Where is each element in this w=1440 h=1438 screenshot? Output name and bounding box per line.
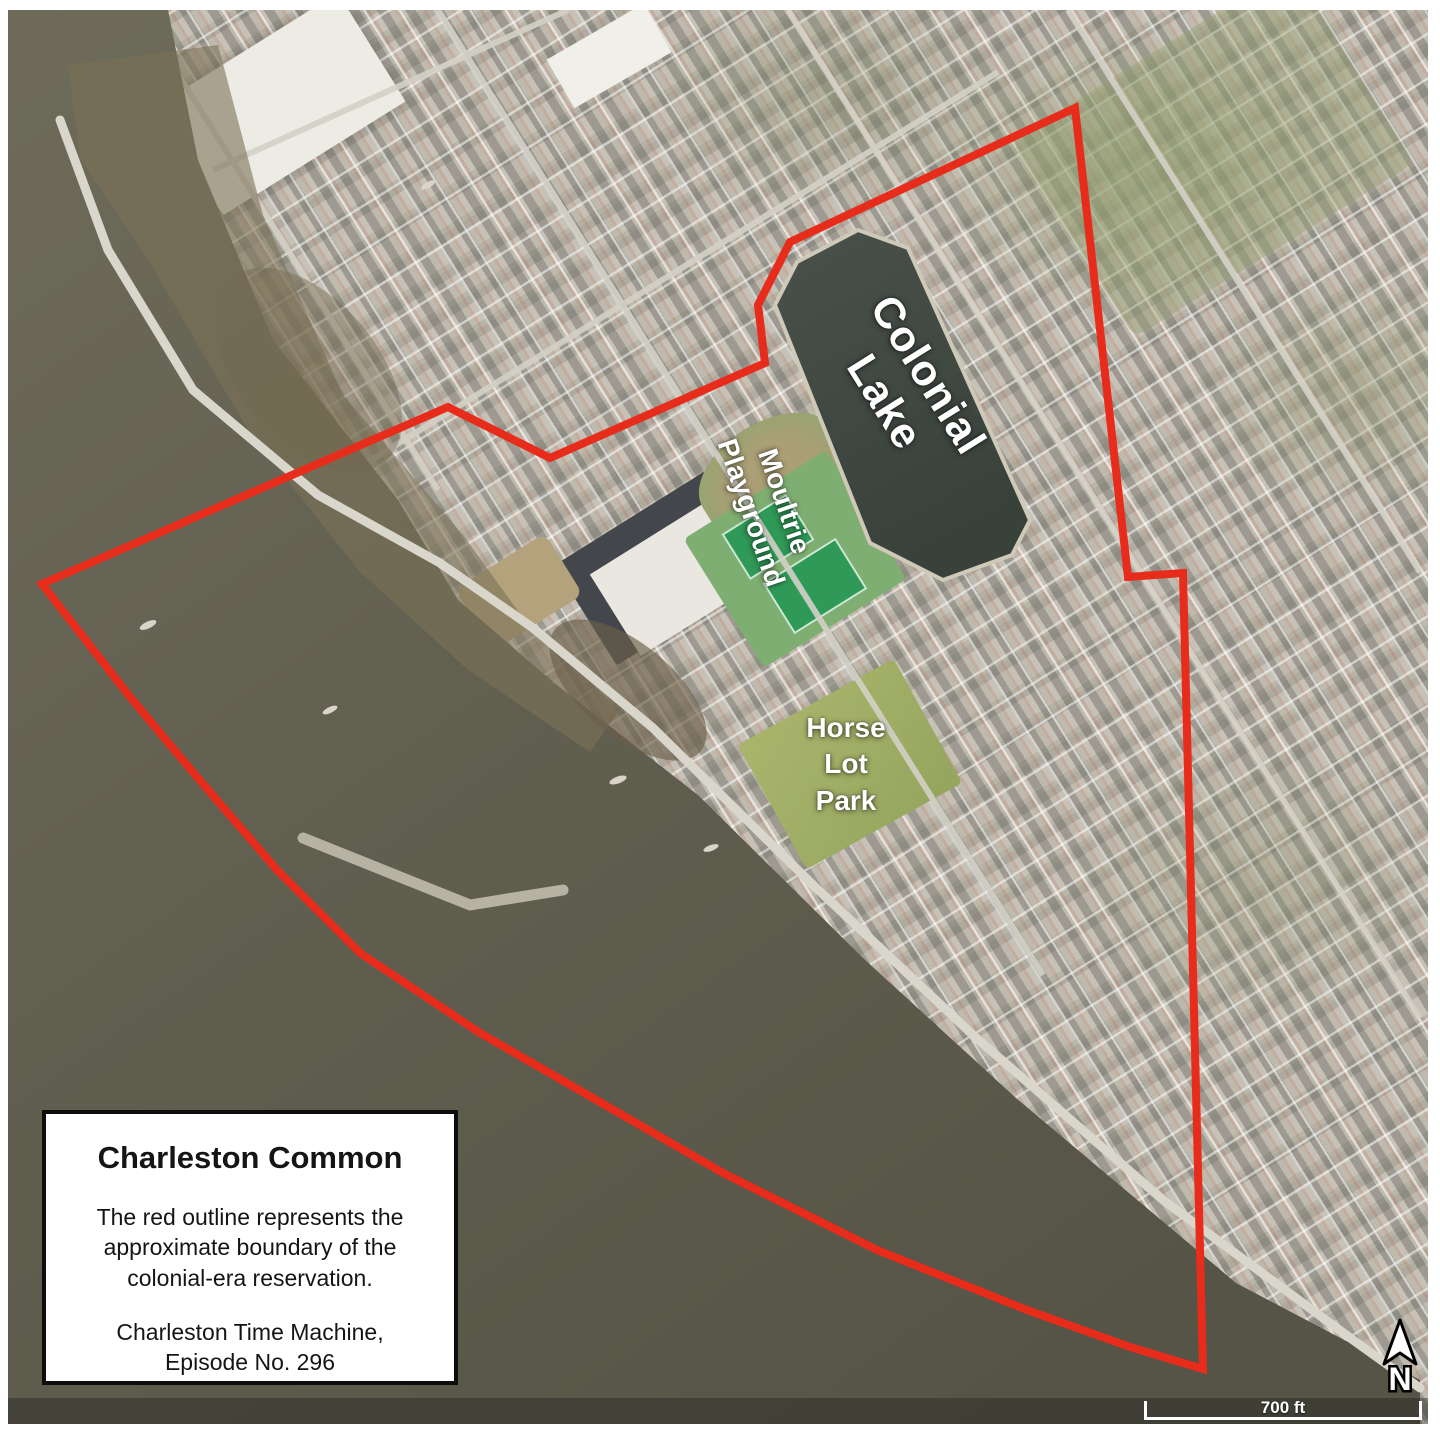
horse-lot-label-line: Park <box>773 783 919 819</box>
scale-bar-label: 700 ft <box>1261 1399 1305 1416</box>
street-line <box>213 10 568 170</box>
info-box-credit: Charleston Time Machine, Episode No. 296 <box>46 1317 454 1378</box>
info-box-credit-line: Episode No. 296 <box>46 1347 454 1377</box>
north-letter: N <box>1388 1361 1411 1394</box>
aerial-map: Colonial Lake Moultrie Playground Horse … <box>8 10 1428 1424</box>
scale-bar: 700 ft <box>1144 1401 1422 1420</box>
north-indicator: N <box>1374 1318 1426 1394</box>
figure-page: Colonial Lake Moultrie Playground Horse … <box>0 0 1440 1438</box>
info-box-credit-line: Charleston Time Machine, <box>46 1317 454 1347</box>
info-box-body-line: The red outline represents the <box>46 1202 454 1232</box>
info-box-title: Charleston Common <box>54 1140 446 1176</box>
north-arrow-icon: N <box>1374 1318 1426 1394</box>
info-box-body-line: approximate boundary of the <box>46 1232 454 1262</box>
horse-lot-park-label: Horse Lot Park <box>773 710 919 819</box>
scale-band: 700 ft <box>8 1398 1428 1424</box>
info-box-body: The red outline represents the approxima… <box>46 1202 454 1293</box>
info-box-body-line: colonial-era reservation. <box>46 1263 454 1293</box>
horse-lot-label-line: Lot <box>773 746 919 782</box>
info-box: Charleston Common The red outline repres… <box>42 1110 458 1385</box>
horse-lot-label-line: Horse <box>773 710 919 746</box>
boat <box>420 178 437 191</box>
